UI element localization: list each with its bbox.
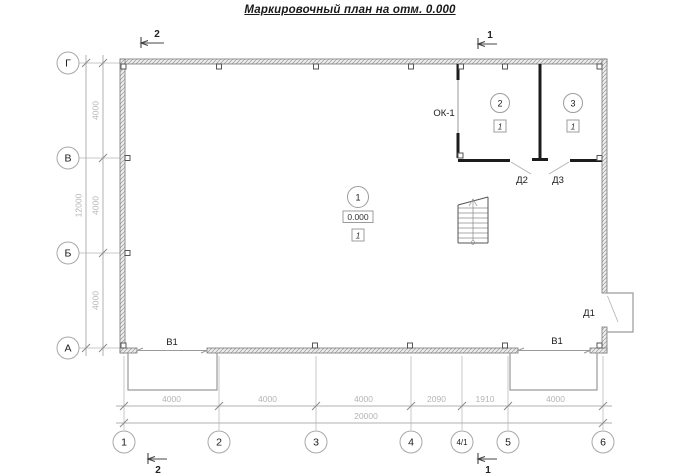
axis-extension-lines <box>79 63 603 430</box>
wall-top <box>120 59 607 64</box>
room-marker-2: 2 1 <box>491 94 510 133</box>
dim-left-3: 4000 <box>91 291 101 310</box>
partition-walls <box>458 64 602 161</box>
axis-col-5: 5 <box>505 437 511 449</box>
axis-markers: Г В Б А 1 2 3 4 4/1 5 6 <box>57 52 614 453</box>
window-label: ОК-1 <box>433 108 454 119</box>
axis-row-b: Б <box>65 248 72 260</box>
dim-bottom-3: 4000 <box>354 394 373 404</box>
porch-door-d1 <box>607 293 633 332</box>
room-markers: 1 0.000 1 2 1 3 1 <box>343 94 583 242</box>
room-number: 1 <box>355 193 360 203</box>
section-number: 1 <box>485 465 491 474</box>
section-mark-bottom-left: 2 <box>148 453 167 474</box>
dim-bottom-5: 1910 <box>476 394 495 404</box>
gate-right-label: В1 <box>551 336 563 347</box>
wall-right-upper <box>602 59 607 293</box>
axis-col-1: 1 <box>121 437 127 449</box>
opening-labels: ОК-1 Д2 Д3 Д1 В1 В1 <box>166 108 595 348</box>
floor-plan-drawing: 4000 4000 4000 12000 4000 4000 4000 2090… <box>0 0 700 474</box>
wall-bottom-b <box>207 348 518 353</box>
door-d1-swing <box>608 296 619 322</box>
dim-left-total: 12000 <box>74 193 84 217</box>
floor-type: 1 <box>571 122 576 132</box>
section-mark-bottom-right: 1 <box>478 453 497 474</box>
floor-type: 1 <box>498 122 503 132</box>
dimension-lines <box>86 55 612 423</box>
axis-col-2: 2 <box>216 437 222 449</box>
dim-bottom-2: 4000 <box>258 394 277 404</box>
section-mark-top-right: 1 <box>478 30 497 49</box>
section-number: 2 <box>154 29 160 40</box>
wall-bottom-a <box>120 348 137 353</box>
section-number: 2 <box>155 465 161 474</box>
room-marker-3: 3 1 <box>564 94 583 133</box>
section-marks: 2 1 2 1 <box>141 29 497 474</box>
wall-bottom-c <box>590 348 607 353</box>
axis-row-g: Г <box>65 58 71 70</box>
porch-gate-left <box>128 353 217 390</box>
dim-bottom-total: 20000 <box>354 411 378 421</box>
staircase <box>458 197 488 244</box>
axis-col-4-1: 4/1 <box>456 438 468 447</box>
floor-type: 1 <box>356 231 361 241</box>
door-d1-label: Д1 <box>583 308 595 319</box>
wall-left <box>120 59 125 353</box>
room-marker-hall: 1 0.000 1 <box>343 187 373 242</box>
tick-marks <box>82 59 607 427</box>
stair-direction-arrow <box>469 199 477 244</box>
axis-col-4: 4 <box>408 437 414 449</box>
dim-bottom-6: 4000 <box>546 394 565 404</box>
dim-left-2: 4000 <box>91 196 101 215</box>
door-d2-label: Д2 <box>516 175 528 186</box>
room-number: 3 <box>570 99 575 109</box>
door-d2-swing <box>511 162 531 174</box>
axis-row-a: А <box>64 343 71 355</box>
floor-plan-canvas: Маркировочный план на отм. 0.000 <box>0 0 700 474</box>
dim-bottom-4: 2090 <box>427 394 446 404</box>
gate-left-label: В1 <box>166 337 178 348</box>
dim-bottom-1: 4000 <box>162 394 181 404</box>
axis-col-3: 3 <box>313 437 319 449</box>
room-number: 2 <box>497 99 502 109</box>
porch-gate-right <box>510 353 597 390</box>
elevation-value: 0.000 <box>347 212 369 222</box>
door-d3-label: Д3 <box>552 175 564 186</box>
dimension-texts: 4000 4000 4000 12000 4000 4000 4000 2090… <box>74 101 566 421</box>
axis-col-6: 6 <box>600 437 606 449</box>
section-mark-top-left: 2 <box>141 29 164 48</box>
dim-left-1: 4000 <box>91 101 101 120</box>
door-d3-swing <box>549 162 569 174</box>
axis-row-v: В <box>64 153 71 165</box>
section-number: 1 <box>487 30 493 41</box>
